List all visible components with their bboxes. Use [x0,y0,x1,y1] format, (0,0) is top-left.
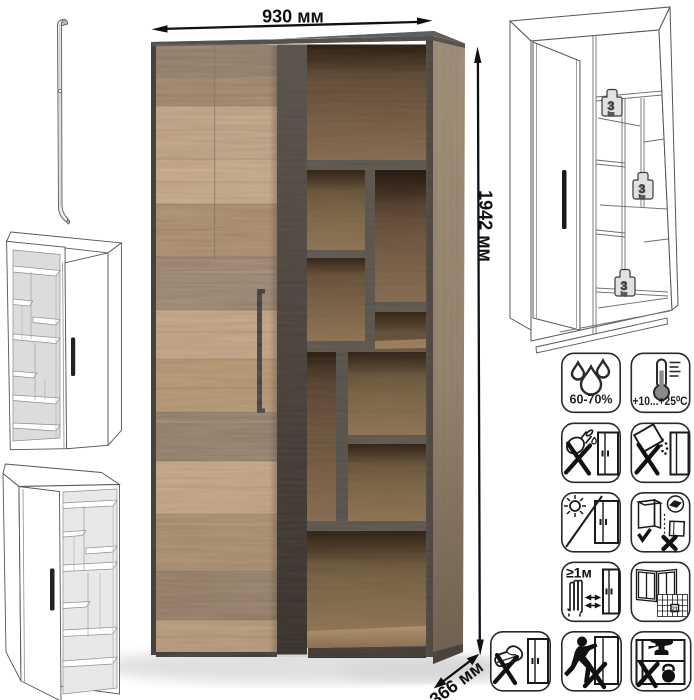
svg-text:1942 мм: 1942 мм [476,190,496,262]
svg-text:21: 21 [672,606,678,612]
svg-text:kg: kg [621,292,627,298]
svg-text:930 мм: 930 мм [262,7,324,27]
svg-text:≥1м: ≥1м [566,565,592,581]
svg-text:kg: kg [608,112,614,118]
svg-text:kg: kg [639,195,645,201]
svg-text:+10...+25⁰С: +10...+25⁰С [633,394,688,408]
svg-text:60-70%: 60-70% [570,392,613,407]
